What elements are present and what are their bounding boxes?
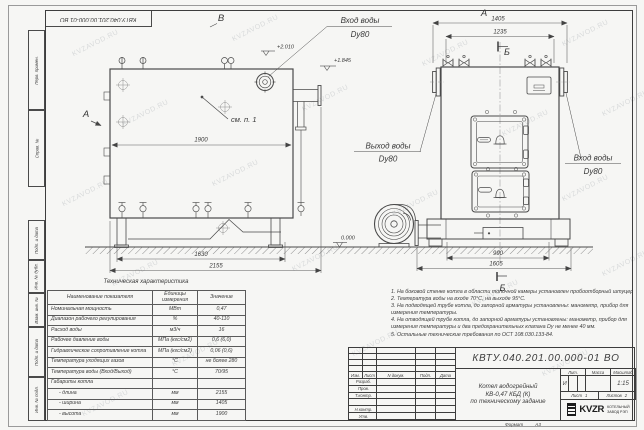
format-note: Формат А3 — [505, 422, 541, 427]
dim-front-base-outer: 1605 — [489, 262, 503, 268]
spec-row: Габариты котла — [48, 378, 246, 389]
furnace-door-lower — [472, 167, 529, 217]
view-mark-side: А — [82, 109, 89, 120]
spec-row: Температура уходящих газов°Сне более 280 — [48, 357, 246, 368]
scale-value: 1:15 — [611, 376, 636, 392]
water-nozzle-flange-left — [430, 68, 444, 96]
title-block-header-row: Изм. Лист N докум. Подп. Дата — [349, 372, 456, 379]
mass-label: Масса — [586, 369, 611, 376]
wall-lugs — [104, 92, 110, 184]
blower-fan-icon — [375, 205, 442, 248]
position-cross-marks — [116, 78, 232, 235]
spec-row: - длинамм2155 — [48, 389, 246, 400]
door-hinge — [524, 197, 529, 205]
dim-front-overall: 1405 — [491, 17, 505, 23]
elevation-mark-icon — [333, 243, 347, 248]
spec-header-row: Наименование показателя Единицыизмерения… — [48, 291, 246, 305]
section-mark-top: Б — [504, 47, 510, 57]
dim-front-base-inner: 990 — [493, 251, 504, 257]
title-block: Изм. Лист N докум. Подп. Дата Разраб. Пр… — [348, 347, 635, 421]
section-mark-icon — [497, 42, 508, 282]
water-nozzle-flange-right — [556, 68, 570, 96]
label-inlet-right-line1: Вход воды — [574, 154, 613, 163]
door-latch-handle — [479, 188, 492, 193]
ground-hatching — [85, 247, 593, 254]
spec-col-name: Наименование показателя — [48, 291, 153, 305]
fan-duct-flange — [415, 221, 418, 246]
company-name: КОТЕЛЬНЫЙ ЗАВОД РЭП — [607, 405, 630, 414]
format-label: Формат — [505, 422, 523, 427]
view-arrow — [91, 121, 101, 126]
spec-row: Номинальная мощностьМВт0,47 — [48, 305, 246, 316]
top-valve-icon — [443, 55, 551, 66]
spec-table: Наименование показателя Единицыизмерения… — [47, 290, 246, 421]
company-stamp: KVZR КОТЕЛЬНЫЙ ЗАВОД РЭП — [561, 400, 636, 421]
dim-side-width: 1900 — [194, 138, 208, 144]
view-tick — [210, 24, 217, 28]
product-name: Котел водогрейный КВ-0,47 КБД (К) по тех… — [456, 369, 561, 420]
view-mark-top: В — [218, 13, 225, 24]
callout-see-item: см. п. 1 — [231, 115, 257, 124]
scale-label: Масштаб — [611, 369, 636, 376]
kvzr-logo-icon — [567, 403, 576, 416]
title-block-revisions: Изм. Лист N докум. Подп. Дата Разраб. Пр… — [349, 348, 456, 420]
spec-row: - ширинамм1405 — [48, 399, 246, 410]
nameplate — [527, 77, 551, 94]
spec-col-units: Единицыизмерения — [153, 291, 198, 305]
sheet-number: Лист1 — [561, 392, 599, 400]
note-line: 5. Остальные технические требования по О… — [391, 332, 639, 339]
sheets-total: Листов2 — [599, 392, 637, 400]
elevation-ground: 0.000 — [341, 236, 356, 242]
dim-front-inner: 1235 — [493, 30, 507, 36]
document-number: КВТУ.040.201.00.000-01 ВО — [456, 348, 636, 369]
lit-label: Лит. — [561, 369, 586, 376]
boiler-side-view — [104, 57, 321, 248]
lit-value: И — [561, 376, 569, 392]
spec-row: Температура воды (Вход/Выход)°С70/95 — [48, 368, 246, 379]
kvzr-logo-text: KVZR — [579, 404, 604, 415]
dim-side-total: 2155 — [208, 264, 223, 270]
label-inlet-top-line1: Вход воды — [341, 16, 380, 25]
mass-value — [586, 376, 611, 392]
spec-row: Расход водым3/ч16 — [48, 326, 246, 337]
ash-hopper-outline — [128, 220, 281, 240]
technical-notes: 1. На боковой стенке котла в области топ… — [391, 289, 639, 339]
note-line: 3. На подводящей трубе котла, до запорно… — [391, 303, 639, 317]
spec-row: - высотамм1900 — [48, 410, 246, 421]
note-line: 4. На отводящей трубе котла, до запорной… — [391, 317, 639, 331]
title-block-signature-rows: Разраб. Пров. Т.контр. Н.контр. Утв. — [349, 379, 456, 420]
drain-valve-icon — [119, 203, 305, 219]
label-outlet-line2: Dy80 — [379, 155, 398, 164]
boiler-body-side — [110, 69, 293, 218]
label-outlet-line1: Выход воды — [366, 142, 411, 151]
spec-col-value: Значение — [198, 291, 246, 305]
safety-valve-icon — [119, 57, 234, 69]
view-mark-front: А — [480, 8, 487, 19]
door-hinge — [524, 179, 529, 187]
elevation-mark-icon — [261, 51, 336, 71]
spec-table-title: Техническая характеристика — [47, 279, 245, 285]
label-inlet-right-line2: Dy80 — [584, 167, 603, 176]
spec-row: Рабочее давление водыМПа (кгс/см2)0,6 (6… — [48, 336, 246, 347]
format-value: А3 — [535, 422, 541, 427]
elevation-side-top: +2.010 — [277, 45, 295, 51]
spec-row: Гидравлическое сопротивление котлаМПа (к… — [48, 347, 246, 358]
note-line: 1. На боковой стенке котла в области топ… — [391, 289, 639, 296]
base-frame — [427, 219, 570, 246]
boiler-front-view — [269, 27, 622, 264]
outlet-pipe-elbow — [293, 86, 321, 203]
drawing-sheet: KVZAVOD.RU KVZAVOD.RU KVZAVOD.RU KVZAVOD… — [0, 0, 644, 430]
callout-leader — [201, 96, 228, 119]
spec-row: Диапазон рабочего регулирования%40-110 — [48, 315, 246, 326]
label-inlet-top-line2: Dy80 — [351, 30, 370, 39]
support-legs — [115, 218, 283, 248]
elevation-side-outlet: +1.845 — [334, 58, 352, 64]
dim-side-base: 1630 — [194, 252, 208, 258]
inlet-flange-icon — [255, 72, 276, 93]
